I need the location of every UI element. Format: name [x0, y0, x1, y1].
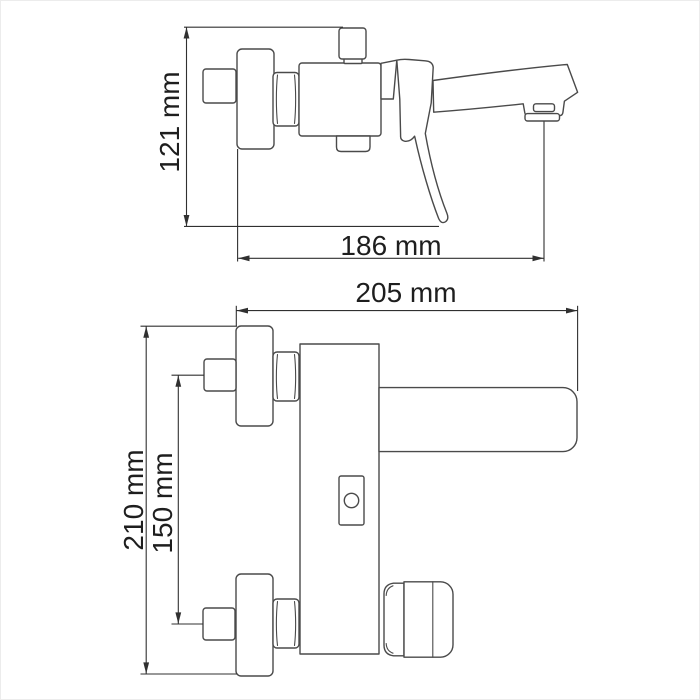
faucet-dimension-drawing — [1, 1, 700, 700]
front-height-dimension-label: 210 mm — [120, 449, 148, 550]
side-depth-dimension-label: 186 mm — [340, 232, 441, 260]
front-inlet-spacing-dimension-label: 150 mm — [149, 452, 177, 553]
front-width-dimension-label: 205 mm — [355, 279, 456, 307]
side-height-dimension-label: 121 mm — [156, 71, 184, 172]
side-inlet-connector — [203, 69, 236, 103]
front-handle-cap — [384, 583, 404, 656]
front-view-drawing — [141, 306, 578, 676]
side-bottom-outlet — [337, 136, 371, 152]
side-spout — [433, 65, 578, 116]
side-wall-flange — [237, 49, 274, 149]
side-aerator-lip — [525, 114, 560, 121]
side-aerator-notch — [534, 104, 555, 112]
front-bottom-wall-flange — [236, 574, 273, 676]
side-view-drawing — [184, 27, 578, 261]
front-top-wall-flange — [236, 326, 273, 426]
technical-drawing-canvas: 121 mm 186 mm 205 mm 210 mm 150 mm — [0, 0, 700, 700]
front-bottom-inlet-connector — [203, 608, 235, 640]
front-diverter-button — [344, 493, 358, 507]
front-top-inlet-connector — [204, 359, 236, 391]
front-spout — [379, 388, 577, 452]
side-mixer-body — [299, 63, 381, 136]
front-handle-body — [404, 582, 453, 657]
side-handle-cone — [381, 60, 397, 99]
